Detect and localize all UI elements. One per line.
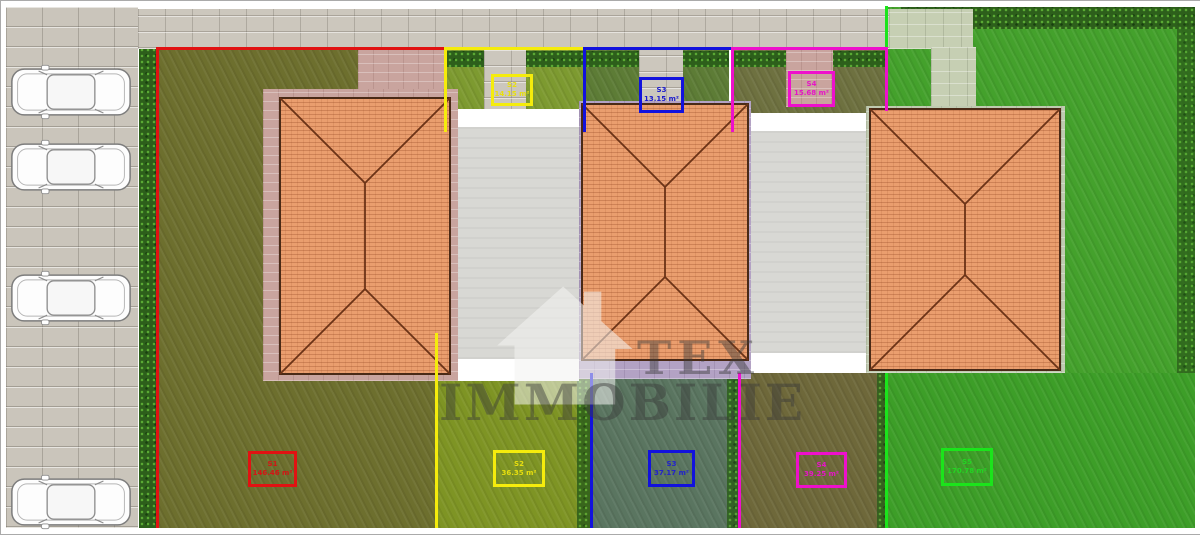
boundary-s5-top-segment: [885, 6, 888, 47]
boundary-s4-left-top: [731, 47, 734, 132]
site-plan: TEX IMMOBILIE S2 14.15 m² S3 13.15 m² S4…: [0, 0, 1200, 535]
plot-id: S5: [962, 458, 972, 467]
car-icon: [9, 138, 133, 196]
plot-id: S4: [817, 461, 827, 470]
sidewalk-top: [138, 9, 889, 49]
boundary-s4-right-top: [885, 47, 888, 111]
boundary-s5-left-bottom: [885, 373, 888, 528]
plot-id: S3: [667, 460, 677, 469]
area-label-s3-bottom: S3 37.17 m²: [648, 450, 695, 487]
boundary-s1-left: [156, 47, 159, 528]
building1-terrace: [358, 47, 444, 91]
boundary-s2-top: [444, 47, 585, 50]
plot-id: S3: [657, 86, 667, 95]
plot-area: 15.68 m²: [794, 89, 829, 98]
plot-id: S2: [507, 81, 517, 90]
plot-area: 14.15 m²: [495, 90, 530, 99]
building3-roof-lines: [869, 108, 1061, 371]
boundary-s2-left-bottom: [435, 333, 438, 528]
plot-area: 170.78 m²: [947, 467, 987, 476]
boundary-s2-left-top: [444, 47, 447, 132]
watermark-line2: IMMOBILIE: [439, 373, 806, 432]
plot-id: S4: [807, 80, 817, 89]
area-label-s2-top: S2 14.15 m²: [491, 74, 533, 106]
driveway2: [751, 131, 866, 353]
driveway1-apron: [458, 109, 579, 127]
hedge-strip-left: [139, 47, 157, 528]
area-label-s2-bottom: S2 36.35 m²: [493, 450, 545, 487]
plot-area: 146.46 m²: [253, 469, 293, 478]
area-label-s4-top: S4 15.68 m²: [788, 71, 835, 107]
plot-area: 37.17 m²: [654, 469, 689, 478]
area-label-s4-bottom: S4 39.25 m²: [796, 452, 847, 488]
building1-roof: [279, 97, 451, 375]
driveway2-bottom: [751, 353, 866, 373]
building3-roof: [869, 108, 1061, 371]
car-icon: [9, 473, 133, 531]
building1-roof-lines: [279, 97, 451, 375]
driveway2-apron: [751, 113, 866, 131]
plot-area: 13.15 m²: [644, 95, 679, 104]
area-label-s1-bottom: S1 146.46 m²: [248, 451, 297, 487]
boundary-s3-left-top: [583, 47, 586, 132]
garden-s5-bottom: [887, 373, 1195, 528]
boundary-s3-top: [583, 47, 731, 50]
car-icon: [9, 269, 133, 327]
boundary-s1-top: [156, 47, 446, 50]
sidewalk-top-right: [889, 9, 973, 49]
plot-area: 39.25 m²: [804, 470, 839, 479]
plot-id: S1: [268, 460, 278, 469]
plot-id: S2: [514, 460, 524, 469]
plot-area: 36.35 m²: [502, 469, 537, 478]
path-s5: [931, 47, 976, 108]
boundary-s4-top: [731, 47, 888, 50]
area-label-s3-top: S3 13.15 m²: [639, 77, 684, 113]
car-icon: [9, 63, 133, 121]
area-label-s5-bottom: S5 170.78 m²: [941, 448, 993, 486]
